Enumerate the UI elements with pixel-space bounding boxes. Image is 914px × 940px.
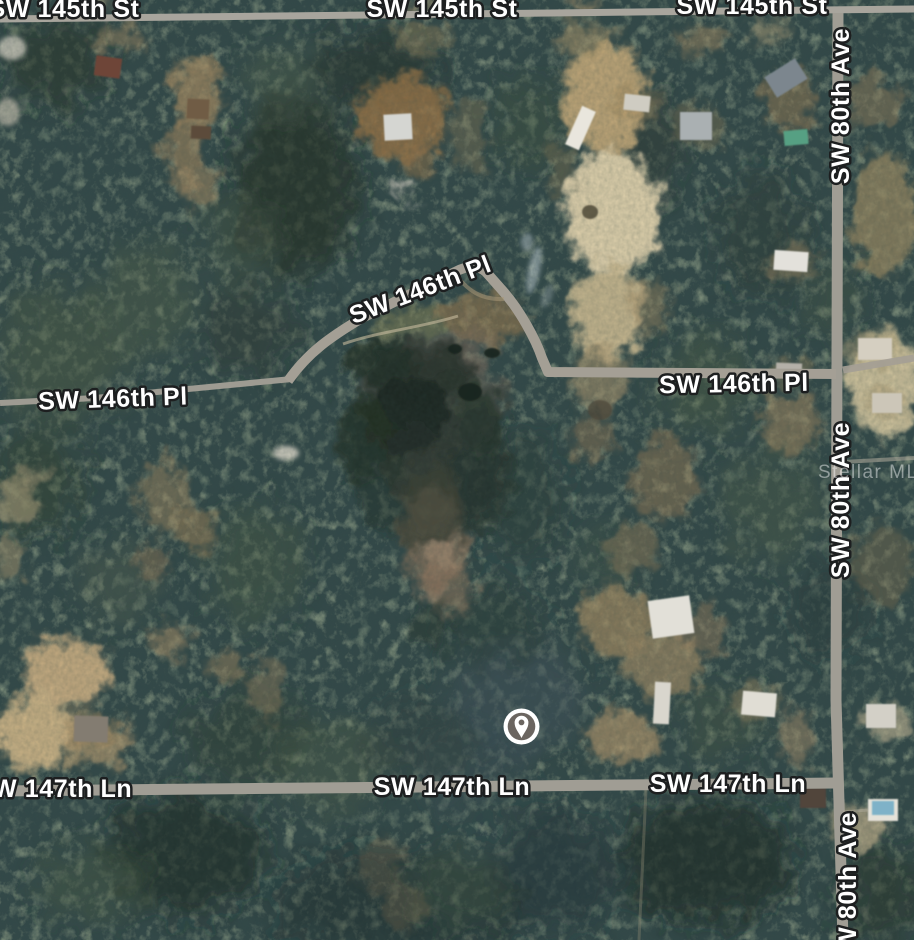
svg-text:SW 145th St: SW 145th St (0, 0, 140, 23)
svg-text:SW 80th Ave: SW 80th Ave (834, 812, 862, 940)
svg-text:SW 145th St: SW 145th St (366, 0, 517, 23)
svg-text:Stellar MLS: Stellar MLS (818, 462, 914, 483)
svg-text:SW 145th St: SW 145th St (676, 0, 827, 20)
svg-text:SW 147th Ln: SW 147th Ln (650, 770, 807, 798)
svg-text:SW 147th Ln: SW 147th Ln (374, 773, 531, 801)
svg-text:SW 146th Pl: SW 146th Pl (38, 382, 189, 415)
svg-text:SW 147th Ln: SW 147th Ln (0, 775, 132, 803)
svg-text:SW 80th Ave: SW 80th Ave (827, 422, 855, 578)
svg-text:SW 80th Ave: SW 80th Ave (827, 28, 855, 184)
svg-text:SW 146th Pl: SW 146th Pl (659, 369, 809, 400)
